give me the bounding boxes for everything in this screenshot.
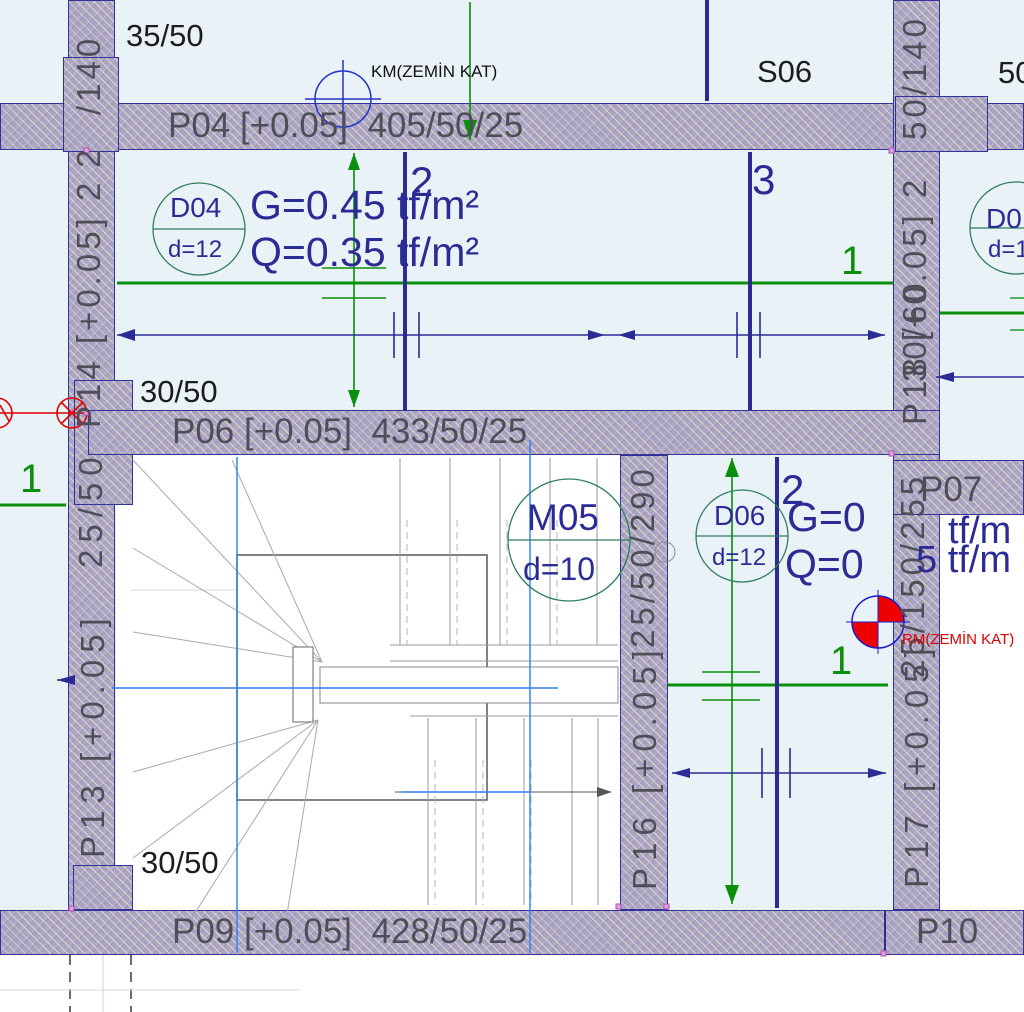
load-d05-dia: d=1	[988, 237, 1024, 262]
axis-1-mid-label: 1	[830, 640, 852, 682]
wall-p16-dim-label: 25/50/290	[626, 465, 661, 648]
axis-3-label: 3	[752, 158, 775, 202]
beam-p09-label: P09 [+0.05] 428/50/25	[172, 914, 527, 951]
load-d06-dia: d=12	[712, 545, 766, 570]
beam-p06-label: P06 [+0.05] 433/50/25	[172, 414, 527, 451]
wall-p16-label: P16 [+0.05]	[628, 643, 663, 890]
beam-p04-label: P04 [+0.05] 405/50/25	[168, 108, 523, 145]
load-d04-g: G=0.45 tf/m²	[250, 184, 479, 227]
wall-right-top-label: 50/140	[898, 15, 933, 140]
slab-dim-50-frag: 50	[998, 57, 1024, 90]
rm-label: RM(ZEMİN KAT)	[902, 632, 1014, 648]
wall-left-mid-label: 25/50	[74, 450, 109, 568]
bottom-strip-area	[0, 955, 1024, 1012]
slab-dim-35-50: 35/50	[126, 20, 204, 53]
wall-p14-label: P14 [+0.05] 2	[72, 179, 107, 428]
axis-1-right-label: 1	[841, 240, 863, 282]
load-d04-id[interactable]: D04	[170, 193, 221, 222]
column-left-bottom[interactable]	[73, 865, 133, 910]
km-label: KM(ZEMİN KAT)	[371, 63, 497, 81]
axis-2-bottom-label: 2	[781, 468, 804, 512]
wall-left-top-label: /140	[72, 35, 107, 115]
wall-p17-label: P17 [+0.05]	[900, 641, 935, 888]
axis-1-left-label: 1	[20, 458, 42, 500]
stair-m05-id[interactable]: M05	[527, 499, 599, 538]
axis-2-top-label: 2	[410, 160, 433, 204]
load-d05-q-fragment: 5 tf/m	[916, 541, 1011, 581]
slab-dim-30-50-top: 30/50	[140, 376, 218, 409]
wall-left-top-frag: 2	[72, 146, 107, 168]
beam-p10-label: P10	[916, 914, 978, 951]
load-d06-q: Q=0	[785, 543, 864, 586]
load-d04-q: Q=0.35 tf/m²	[250, 231, 479, 274]
load-d06-id[interactable]: D06	[714, 501, 765, 530]
slab-s06-label: S06	[757, 56, 812, 89]
slab-dim-30-50-bottom: 30/50	[141, 847, 219, 880]
wall-p13-label: P13 [+0.05]	[76, 611, 111, 858]
load-d04-dia: d=12	[168, 237, 222, 262]
stair-m05-dia: d=10	[523, 553, 595, 587]
load-d05-id[interactable]: D0	[986, 204, 1022, 233]
wall-p18-overlap-label: 30/60	[898, 279, 933, 382]
floor-plan-canvas: tf/m	[0, 0, 1024, 1012]
